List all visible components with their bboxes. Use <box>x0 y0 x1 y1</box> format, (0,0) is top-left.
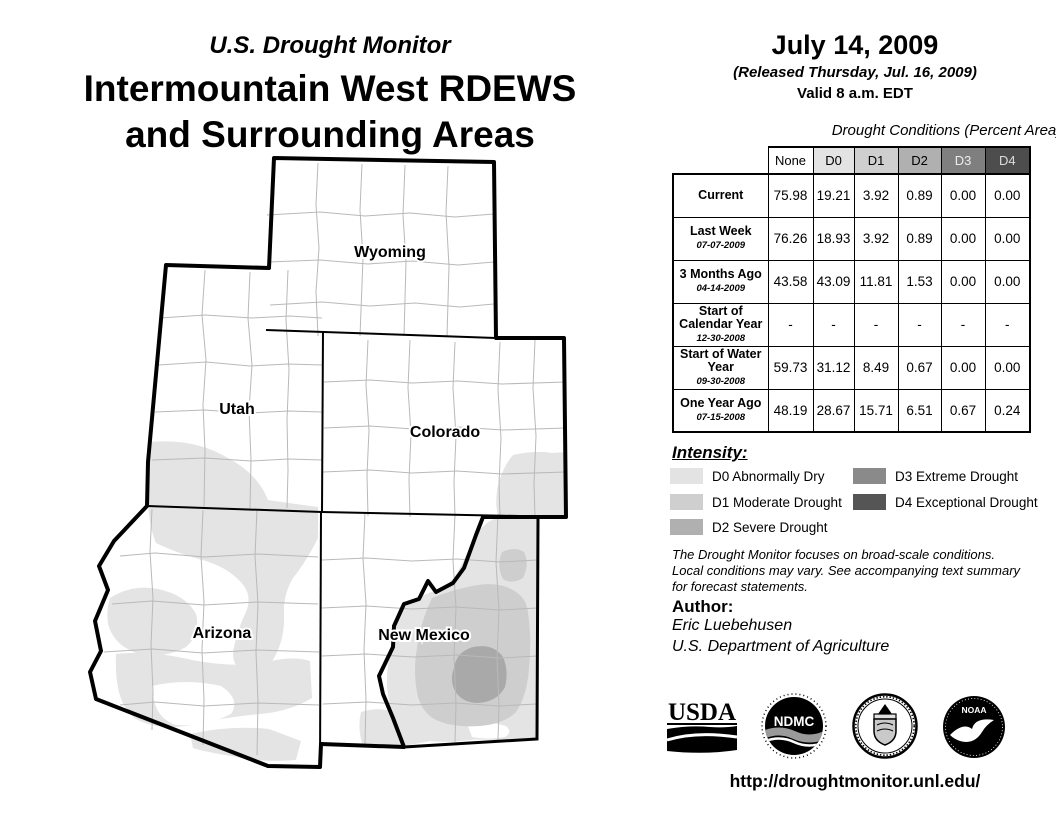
row-label-text: Start of Water Year <box>680 347 762 374</box>
drought-conditions-table: None D0 D1 D2 D3 D4 Current 75.98 19.21 … <box>672 146 1031 433</box>
legend-item-d2: D2 Severe Drought <box>670 519 828 535</box>
table-cell: - <box>985 303 1030 346</box>
table-cell: 0.24 <box>985 389 1030 432</box>
ndmc-logo: NDMC <box>761 693 827 759</box>
state-label-wyoming: Wyoming <box>354 244 426 261</box>
intensity-heading: Intensity: <box>672 443 748 463</box>
noaa-logo: NOAA <box>941 694 1007 760</box>
author-org: U.S. Department of Agriculture <box>672 638 889 656</box>
table-cell: 3.92 <box>854 174 898 217</box>
column-header-d4: D4 <box>985 147 1030 174</box>
table-cell: 28.67 <box>813 389 854 432</box>
author-heading: Author: <box>672 597 733 617</box>
table-cell: 0.00 <box>985 217 1030 260</box>
table-row: 3 Months Ago04-14-2009 43.58 43.09 11.81… <box>673 260 1030 303</box>
table-cell: 76.26 <box>768 217 813 260</box>
row-label-date: 07-07-2009 <box>674 239 768 252</box>
column-header-d1: D1 <box>854 147 898 174</box>
drought-map: Wyoming Utah Colorado Arizona New Mexico <box>0 0 660 816</box>
legend-label: D1 Moderate Drought <box>712 495 842 510</box>
legend-item-d4: D4 Exceptional Drought <box>853 494 1038 510</box>
column-header-none: None <box>768 147 813 174</box>
valid-time: Valid 8 a.m. EDT <box>660 85 1050 102</box>
row-label: Current <box>673 174 768 217</box>
table-row: Start of Calendar Year12-30-2008 - - - -… <box>673 303 1030 346</box>
row-label: Start of Water Year09-30-2008 <box>673 346 768 389</box>
table-row: Current 75.98 19.21 3.92 0.89 0.00 0.00 <box>673 174 1030 217</box>
usda-logo: USDA <box>664 700 740 756</box>
d3-swatch <box>853 468 886 484</box>
author-name: Eric Luebehusen <box>672 617 792 635</box>
legend-label: D0 Abnormally Dry <box>712 469 825 484</box>
table-cell: 0.00 <box>941 217 985 260</box>
row-label: Start of Calendar Year12-30-2008 <box>673 303 768 346</box>
table-cell: - <box>768 303 813 346</box>
d2-swatch <box>670 519 703 535</box>
table-cell: - <box>941 303 985 346</box>
table-cell: 6.51 <box>898 389 941 432</box>
state-label-utah: Utah <box>219 401 255 418</box>
column-header-d3: D3 <box>941 147 985 174</box>
row-label: Last Week07-07-2009 <box>673 217 768 260</box>
table-cell: 19.21 <box>813 174 854 217</box>
table-cell: 0.00 <box>985 346 1030 389</box>
row-label: 3 Months Ago04-14-2009 <box>673 260 768 303</box>
table-cell: 8.49 <box>854 346 898 389</box>
legend-label: D4 Exceptional Drought <box>895 495 1038 510</box>
table-cell: - <box>898 303 941 346</box>
legend-label: D3 Extreme Drought <box>895 469 1018 484</box>
row-label-text: Start of Calendar Year <box>679 304 762 331</box>
disclaimer-line3: for forecast statements. <box>672 579 1052 595</box>
row-label-text: One Year Ago <box>680 396 761 410</box>
table-row: Last Week07-07-2009 76.26 18.93 3.92 0.8… <box>673 217 1030 260</box>
d4-swatch <box>853 494 886 510</box>
table-row: Start of Water Year09-30-2008 59.73 31.1… <box>673 346 1030 389</box>
report-date: July 14, 2009 <box>660 30 1050 61</box>
noaa-wordmark: NOAA <box>961 705 986 715</box>
row-label-date: 09-30-2008 <box>674 375 768 388</box>
table-cell: 0.89 <box>898 174 941 217</box>
table-cell: 18.93 <box>813 217 854 260</box>
table-cell: 75.98 <box>768 174 813 217</box>
table-cell: - <box>813 303 854 346</box>
row-label-text: Current <box>698 188 743 202</box>
row-label-date: 07-15-2008 <box>674 411 768 424</box>
d0-swatch <box>670 468 703 484</box>
legend-item-d0: D0 Abnormally Dry <box>670 468 825 484</box>
d1-swatch <box>670 494 703 510</box>
table-row: One Year Ago07-15-2008 48.19 28.67 15.71… <box>673 389 1030 432</box>
table-cell: 1.53 <box>898 260 941 303</box>
table-caption: Drought Conditions (Percent Area) <box>672 122 1056 139</box>
usda-swoosh <box>667 726 737 753</box>
disclaimer-line2: Local conditions may vary. See accompany… <box>672 563 1052 579</box>
table-cell: 3.92 <box>854 217 898 260</box>
legend-item-d3: D3 Extreme Drought <box>853 468 1018 484</box>
table-cell: 43.58 <box>768 260 813 303</box>
drought-monitor-url: http://droughtmonitor.unl.edu/ <box>660 771 1050 792</box>
usda-wordmark: USDA <box>668 700 736 726</box>
row-label-text: Last Week <box>690 224 752 238</box>
row-label-date: 04-14-2009 <box>674 282 768 295</box>
table-cell: 11.81 <box>854 260 898 303</box>
table-cell: 0.00 <box>985 174 1030 217</box>
disclaimer-line1: The Drought Monitor focuses on broad-sca… <box>672 547 1052 563</box>
row-label: One Year Ago07-15-2008 <box>673 389 768 432</box>
table-header-row: None D0 D1 D2 D3 D4 <box>673 147 1030 174</box>
table-cell: 0.89 <box>898 217 941 260</box>
row-label-text: 3 Months Ago <box>680 267 762 281</box>
table-cell: 0.00 <box>941 346 985 389</box>
ndmc-wordmark: NDMC <box>774 714 815 729</box>
table-header-blank <box>673 147 768 174</box>
state-label-new-mexico: New Mexico <box>378 627 470 644</box>
table-cell: 43.09 <box>813 260 854 303</box>
commerce-seal-logo <box>851 692 919 760</box>
table-cell: - <box>854 303 898 346</box>
legend-label: D2 Severe Drought <box>712 520 828 535</box>
table-cell: 15.71 <box>854 389 898 432</box>
table-cell: 0.00 <box>941 174 985 217</box>
table-cell: 0.67 <box>941 389 985 432</box>
state-label-colorado: Colorado <box>410 424 480 441</box>
table-cell: 0.00 <box>941 260 985 303</box>
table-cell: 48.19 <box>768 389 813 432</box>
table-cell: 59.73 <box>768 346 813 389</box>
usda-underline <box>667 723 737 725</box>
table-cell: 31.12 <box>813 346 854 389</box>
column-header-d0: D0 <box>813 147 854 174</box>
table-cell: 0.00 <box>985 260 1030 303</box>
released-date: (Released Thursday, Jul. 16, 2009) <box>660 64 1050 81</box>
table-cell: 0.67 <box>898 346 941 389</box>
state-label-arizona: Arizona <box>193 625 252 642</box>
row-label-date: 12-30-2008 <box>674 332 768 345</box>
column-header-d2: D2 <box>898 147 941 174</box>
drought-monitor-page: U.S. Drought Monitor Intermountain West … <box>0 0 1056 816</box>
legend-item-d1: D1 Moderate Drought <box>670 494 842 510</box>
